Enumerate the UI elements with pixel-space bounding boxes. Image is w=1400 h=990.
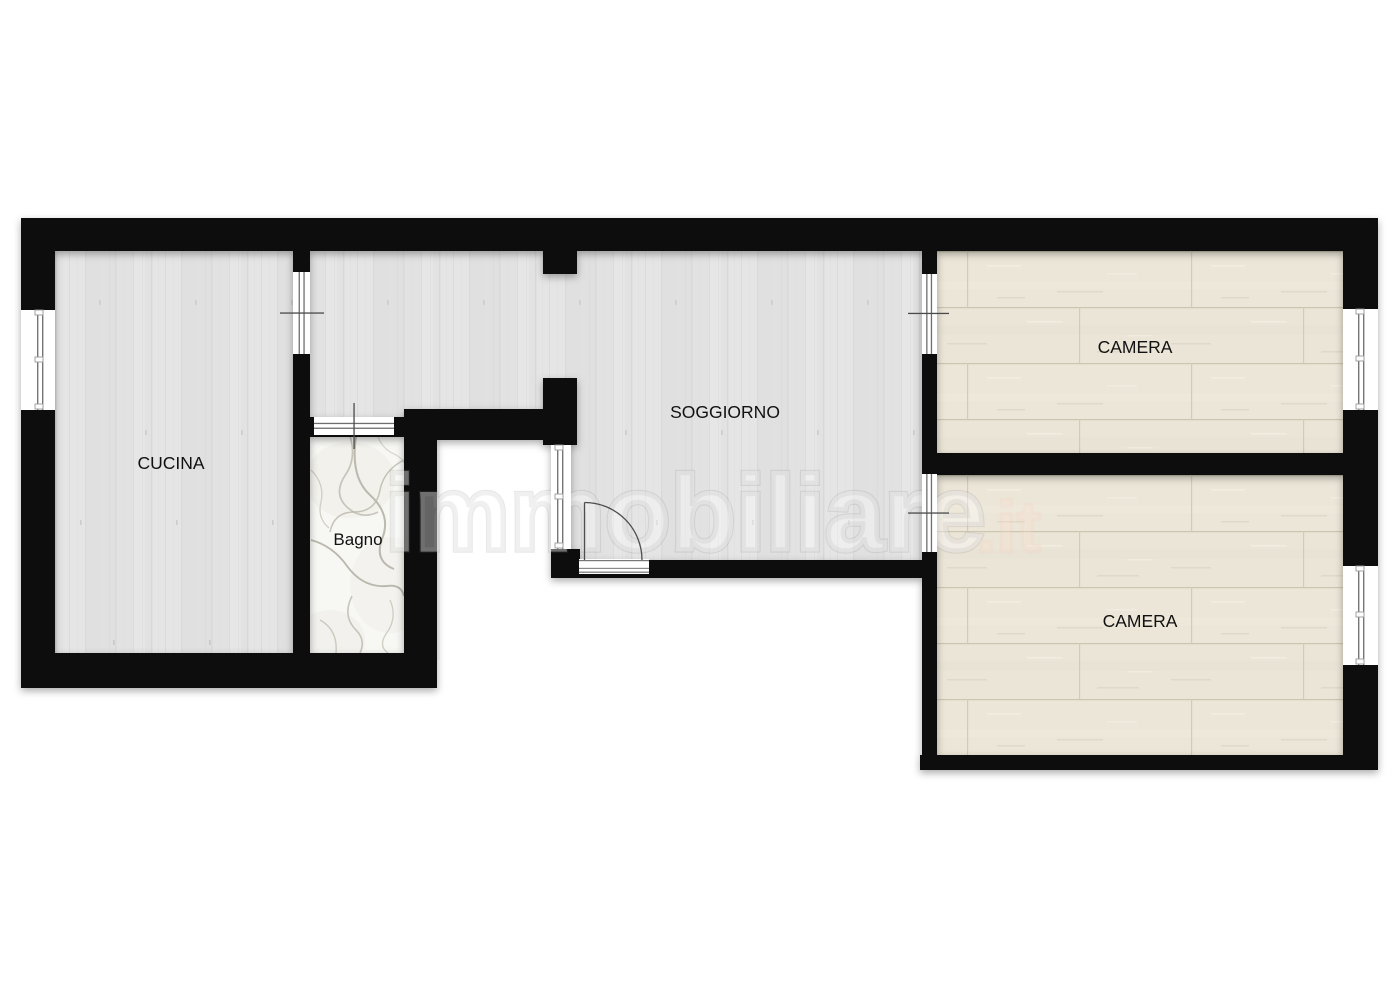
svg-text:CUCINA: CUCINA	[137, 453, 204, 473]
svg-text:CAMERA: CAMERA	[1103, 611, 1178, 631]
svg-text:CAMERA: CAMERA	[1098, 337, 1173, 357]
svg-text:.it: .it	[976, 487, 1041, 568]
svg-text:Bagno: Bagno	[333, 530, 382, 549]
svg-text:SOGGIORNO: SOGGIORNO	[670, 402, 780, 422]
svg-text:immobiliare: immobiliare	[385, 453, 986, 573]
